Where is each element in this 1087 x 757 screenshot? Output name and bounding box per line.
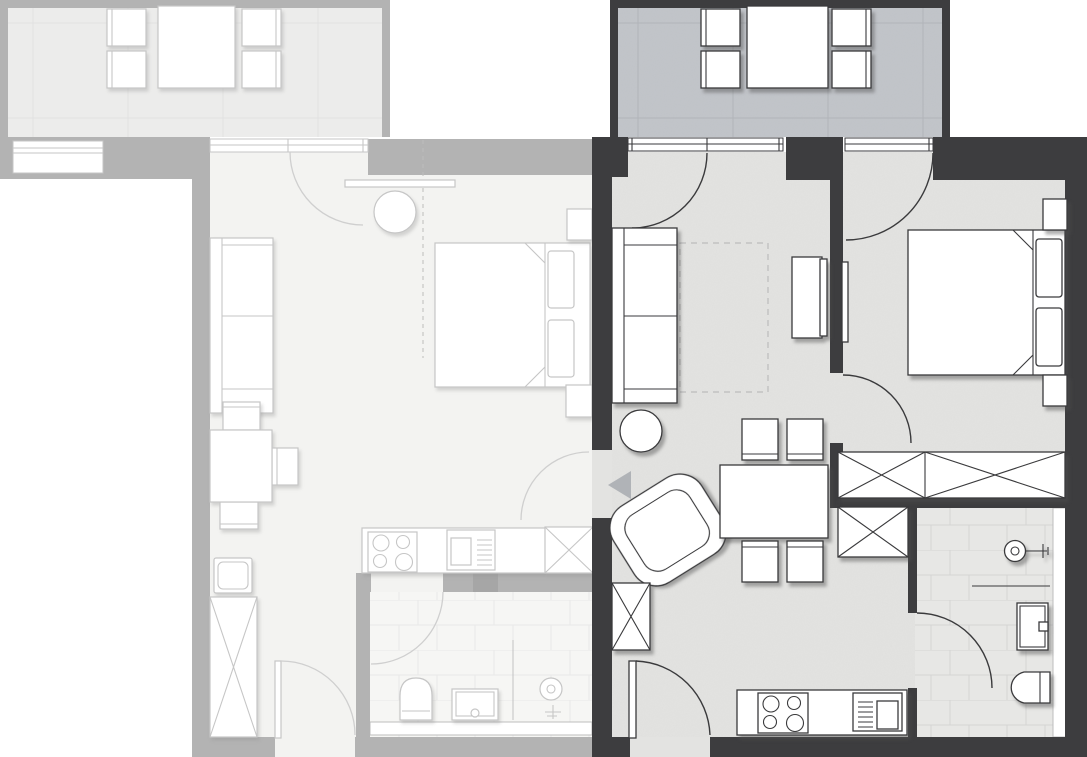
left-bathroom-wall — [356, 592, 370, 737]
right-bathroom-wall-upper — [908, 508, 917, 613]
right-wall-west-lower — [592, 518, 612, 757]
left-balcony-wall-right — [382, 0, 390, 137]
left-sofa — [210, 238, 273, 413]
right-bedroom-divider-wall — [830, 175, 843, 373]
right-wall-east — [1065, 178, 1087, 757]
left-wall-west — [192, 157, 210, 757]
left-single-chair — [214, 558, 252, 593]
right-balcony — [610, 0, 950, 137]
right-bed — [908, 230, 1065, 375]
right-wall-west-upper — [592, 137, 612, 450]
right-entry-cabinet — [612, 583, 650, 650]
right-wardrobe-long — [838, 452, 1065, 498]
floor-plan-canvas — [0, 0, 1087, 757]
right-side-table — [620, 410, 662, 452]
right-wardrobe-small — [838, 507, 908, 557]
right-sofa — [612, 228, 677, 403]
left-washbasin — [452, 689, 498, 720]
right-tv-sideboard — [792, 257, 827, 338]
right-washbasin — [1017, 603, 1048, 650]
left-tall-wardrobe — [210, 597, 257, 737]
right-entry-door-leaf — [629, 661, 636, 738]
apartment-right[interactable] — [592, 0, 1087, 757]
left-bottom-door-leaf — [275, 661, 281, 738]
left-wall-shelf — [345, 180, 455, 187]
right-bathroom-strip — [1053, 508, 1067, 737]
left-kitchen-counter — [362, 527, 593, 573]
right-balcony-wall-right — [942, 0, 950, 137]
right-kitchen-counter — [737, 690, 907, 735]
left-balcony-table — [158, 6, 235, 88]
left-balcony — [0, 0, 390, 137]
floor-plan — [0, 0, 1087, 757]
right-bedroom-radiator — [842, 262, 848, 342]
left-bathroom-threshold — [370, 722, 592, 735]
right-bathroom-wall-lower — [908, 688, 917, 737]
right-toilet — [1011, 672, 1050, 703]
right-windows — [628, 138, 933, 151]
left-window-1 — [13, 141, 103, 173]
left-toilet — [400, 678, 432, 720]
left-round-table — [374, 191, 416, 233]
right-balcony-table — [747, 6, 828, 88]
left-bed — [435, 243, 590, 387]
right-balcony-wall-left — [610, 0, 618, 137]
apartment-left[interactable] — [0, 0, 593, 757]
left-balcony-wall-left — [0, 0, 8, 137]
